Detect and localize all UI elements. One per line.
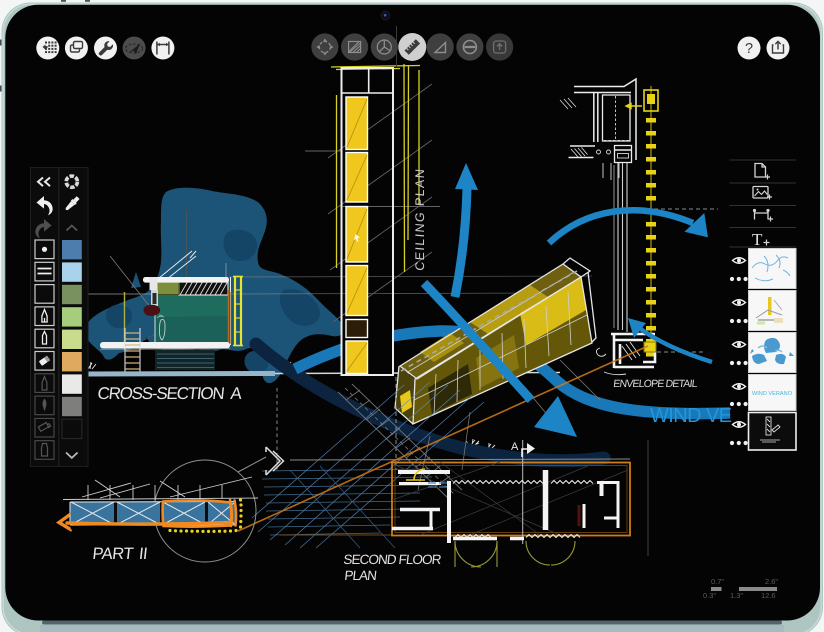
svg-text:0.7": 0.7" xyxy=(711,577,724,586)
svg-text:2.6": 2.6" xyxy=(765,577,778,586)
svg-text:12.6: 12.6 xyxy=(761,591,776,600)
svg-text:CROSS-SECTIONA: CROSS-SECTIONA xyxy=(97,384,244,403)
svg-text:PARTII: PARTII xyxy=(92,544,149,563)
svg-text:ENVELOPE DETAIL: ENVELOPE DETAIL xyxy=(613,378,699,390)
svg-text:?: ? xyxy=(745,41,753,57)
svg-text:PLAN: PLAN xyxy=(344,568,377,583)
svg-text:WIND VE: WIND VE xyxy=(650,405,732,427)
svg-text:A: A xyxy=(511,441,519,453)
svg-text:0.3": 0.3" xyxy=(703,591,716,600)
svg-text:1.3": 1.3" xyxy=(730,591,743,600)
svg-text:CEILING PLAN: CEILING PLAN xyxy=(413,167,427,271)
svg-text:SECOND FLOOR: SECOND FLOOR xyxy=(343,552,443,567)
svg-text:T: T xyxy=(752,230,763,249)
svg-text:WIND VERANO: WIND VERANO xyxy=(752,391,793,397)
